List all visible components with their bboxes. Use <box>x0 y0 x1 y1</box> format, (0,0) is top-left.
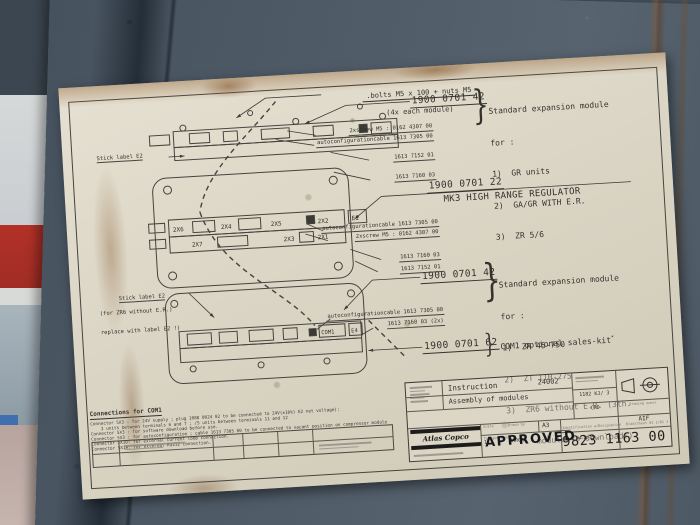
supersedes-field <box>573 373 613 382</box>
asterisk: * <box>611 335 614 341</box>
ref-number: 1182 KJ/ 3 <box>572 390 616 399</box>
sheet-size: A3 <box>542 422 550 429</box>
title-block: Instruction 24002 Assembly of modules 11… <box>404 367 672 463</box>
callout-4-brace: } <box>483 331 495 358</box>
logo-footer <box>412 449 478 456</box>
projection-symbol-icon <box>619 374 664 397</box>
module-label: 2X5 <box>271 220 283 228</box>
drawing-sticker: 2X6 2X4 2X5 2X2 E1 2X7 2X3 2X1 COM1 E4 .… <box>58 52 689 499</box>
callout-1-desc: Standard expansion module for : 1) GR un… <box>487 79 618 264</box>
field-labels <box>408 383 441 402</box>
atlas-copco-logo: Atlas Copco <box>410 426 481 450</box>
doc-type: Instruction <box>448 381 498 393</box>
cad-label: CAD <box>573 404 617 413</box>
module-label: 2X4 <box>221 223 233 231</box>
photo-of-technical-drawing: 2X6 2X4 2X5 2X2 E1 2X7 2X3 2X1 COM1 E4 .… <box>0 0 700 525</box>
module-label: 2X2 <box>317 218 329 226</box>
module-label: 2X7 <box>192 241 204 249</box>
approved-date: 04-12-15 <box>576 434 594 440</box>
module-label: E1 <box>351 215 359 222</box>
doc-number: 24002 <box>537 377 559 386</box>
stick-label-block: Stick label E2 (for ZR6 without E.R.) re… <box>98 285 193 350</box>
module-label: 2X6 <box>173 226 185 234</box>
